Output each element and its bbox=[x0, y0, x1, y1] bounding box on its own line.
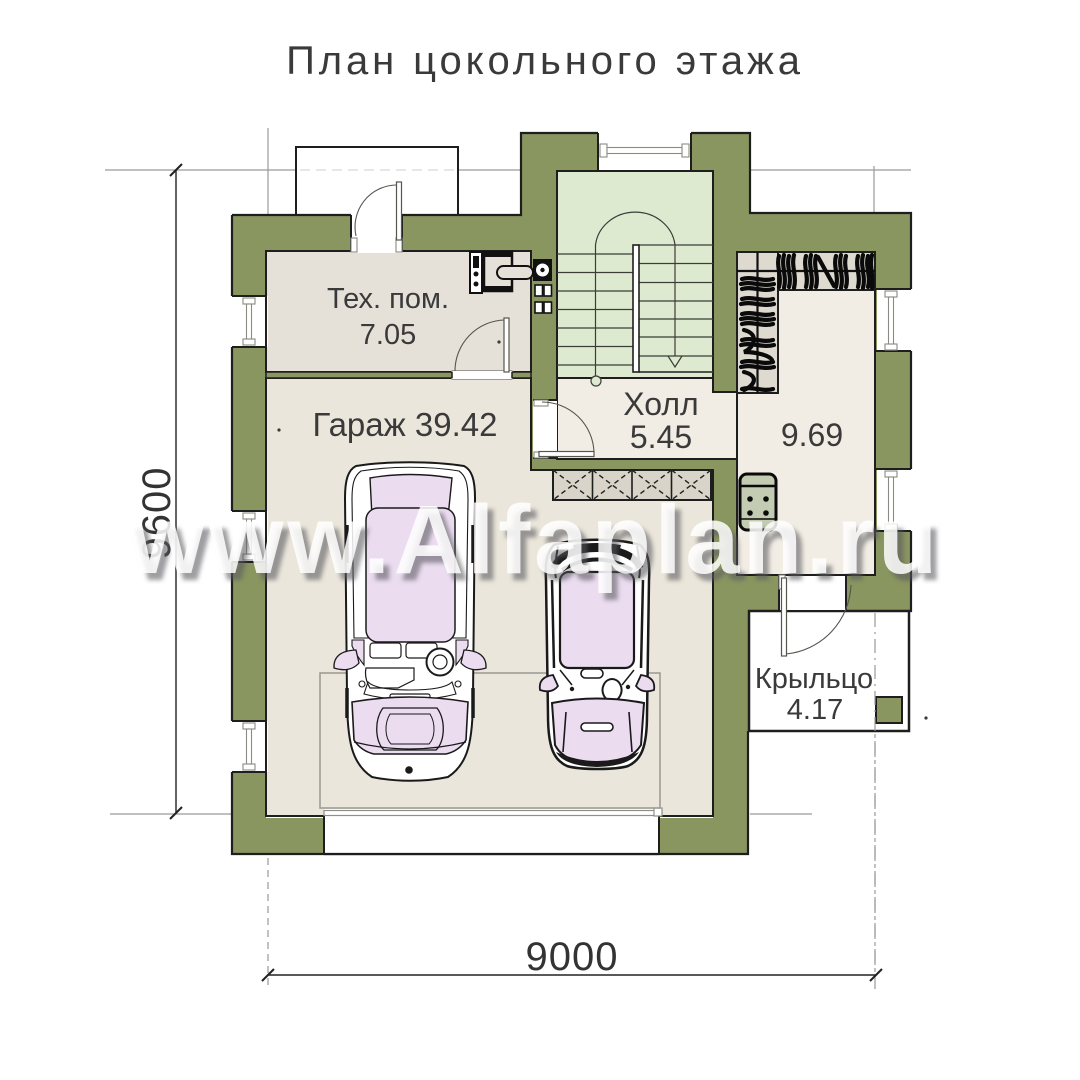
svg-text:Крыльцо: Крыльцо bbox=[755, 663, 873, 695]
svg-text:9000: 9000 bbox=[526, 935, 619, 979]
svg-text:Холл: Холл bbox=[623, 386, 698, 422]
svg-text:Тех. пом.: Тех. пом. bbox=[327, 283, 449, 315]
svg-text:9.69: 9.69 bbox=[781, 417, 843, 453]
svg-text:5.45: 5.45 bbox=[630, 419, 692, 455]
svg-text:7.05: 7.05 bbox=[360, 319, 416, 351]
svg-text:4.17: 4.17 bbox=[787, 694, 843, 726]
svg-text:План цокольного этажа: План цокольного этажа bbox=[286, 39, 804, 83]
svg-text:Гараж 39.42: Гараж 39.42 bbox=[313, 406, 498, 443]
